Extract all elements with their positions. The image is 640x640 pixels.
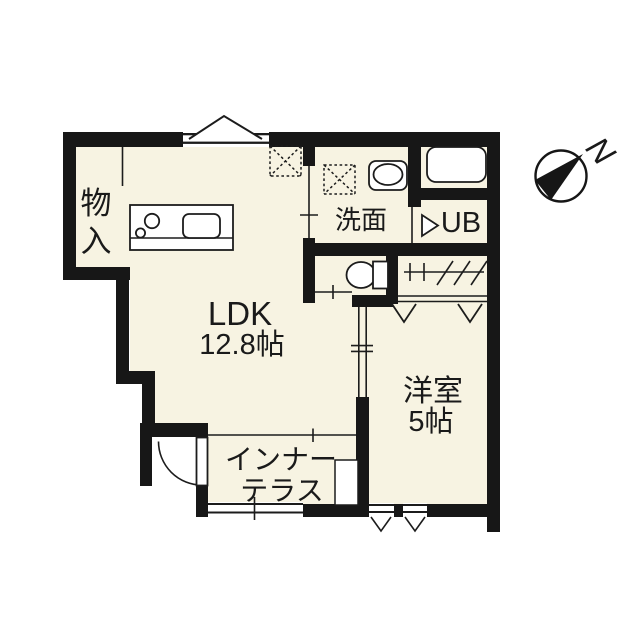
terrace-step [335, 460, 358, 505]
window-edge [208, 512, 303, 514]
stove-burners-icon [145, 214, 159, 228]
room-label-ldk: LDK [208, 295, 272, 332]
room-label-storage-char2: 入 [81, 224, 112, 259]
room-size-ldk: 12.8帖 [199, 328, 284, 361]
north-label: N [579, 130, 623, 172]
wall-ldk-left [116, 267, 129, 384]
wall-between-vents [394, 504, 403, 517]
toilet-icon [347, 262, 389, 289]
wall-toilet-bottom [352, 295, 398, 307]
toilet-tank [373, 262, 388, 289]
room-label-unit-bath: UB [441, 207, 481, 239]
washbasin-icon [369, 161, 407, 190]
wall-terrace-left [196, 483, 208, 517]
floor-plan-page: N LDK 12.8帖 洋室 5帖 洗面 UB 物 入 インナー テラス [0, 0, 640, 640]
wall-top [63, 132, 500, 147]
wall-porch-left [140, 423, 152, 486]
kitchen-counter-icon [130, 205, 233, 250]
wall-left [63, 132, 76, 280]
toilet-bowl [347, 262, 376, 288]
vent-icon [405, 517, 425, 531]
room-label-terrace-line2: テラス [240, 475, 323, 506]
stove-burners-icon [136, 228, 145, 237]
wall-bathtub-edge [415, 188, 500, 200]
room-label-terrace-line1: インナー [225, 444, 337, 475]
entrance-door-icon [159, 438, 208, 486]
window-edge [403, 511, 427, 513]
entrance-door-leaf [197, 438, 208, 486]
terrace-step-box [335, 460, 358, 505]
washbasin-bowl [374, 164, 403, 185]
room-label-washroom: 洗面 [335, 205, 387, 235]
window-edge [369, 504, 394, 506]
floor-plan-svg: N LDK 12.8帖 洋室 5帖 洗面 UB 物 入 インナー テラス [0, 0, 640, 640]
room-size-western: 5帖 [408, 405, 453, 438]
window-edge [183, 142, 269, 144]
bay-window-roof-icon [189, 116, 262, 139]
room-label-storage-char1: 物 [81, 186, 112, 221]
entrance-door-arc [159, 442, 203, 486]
room-label-western: 洋室 [403, 375, 463, 408]
wall-washroom-left-upper [303, 132, 315, 166]
vent-icon [371, 517, 391, 531]
kitchen-sink-icon [183, 214, 220, 238]
top-window [183, 116, 269, 147]
wall-middle-horizontal [303, 243, 500, 256]
compass-north-icon: N [535, 130, 623, 202]
bathtub-icon [427, 147, 486, 182]
window-edge [403, 504, 427, 506]
window-edge [369, 511, 394, 513]
